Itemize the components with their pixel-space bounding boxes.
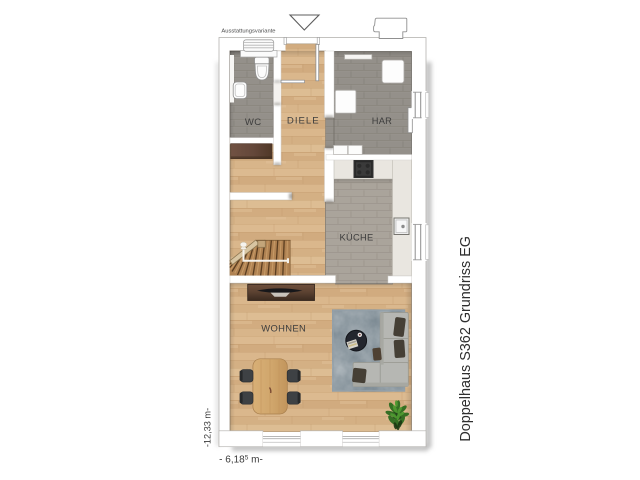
svg-text:-12,33 m-: -12,33 m- xyxy=(202,408,212,447)
svg-text:Ausstattungsvariante: Ausstattungsvariante xyxy=(221,28,275,34)
svg-text:HAR: HAR xyxy=(372,116,392,126)
svg-text:WOHNEN: WOHNEN xyxy=(261,322,306,333)
svg-text:DIELE: DIELE xyxy=(287,116,320,127)
svg-text:- 6,185 m-: - 6,185 m- xyxy=(219,455,263,466)
svg-text:WC: WC xyxy=(245,117,262,128)
svg-text:KÜCHE: KÜCHE xyxy=(339,232,373,242)
svg-text:Doppelhaus S362 Grundriss EG: Doppelhaus S362 Grundriss EG xyxy=(458,236,474,442)
